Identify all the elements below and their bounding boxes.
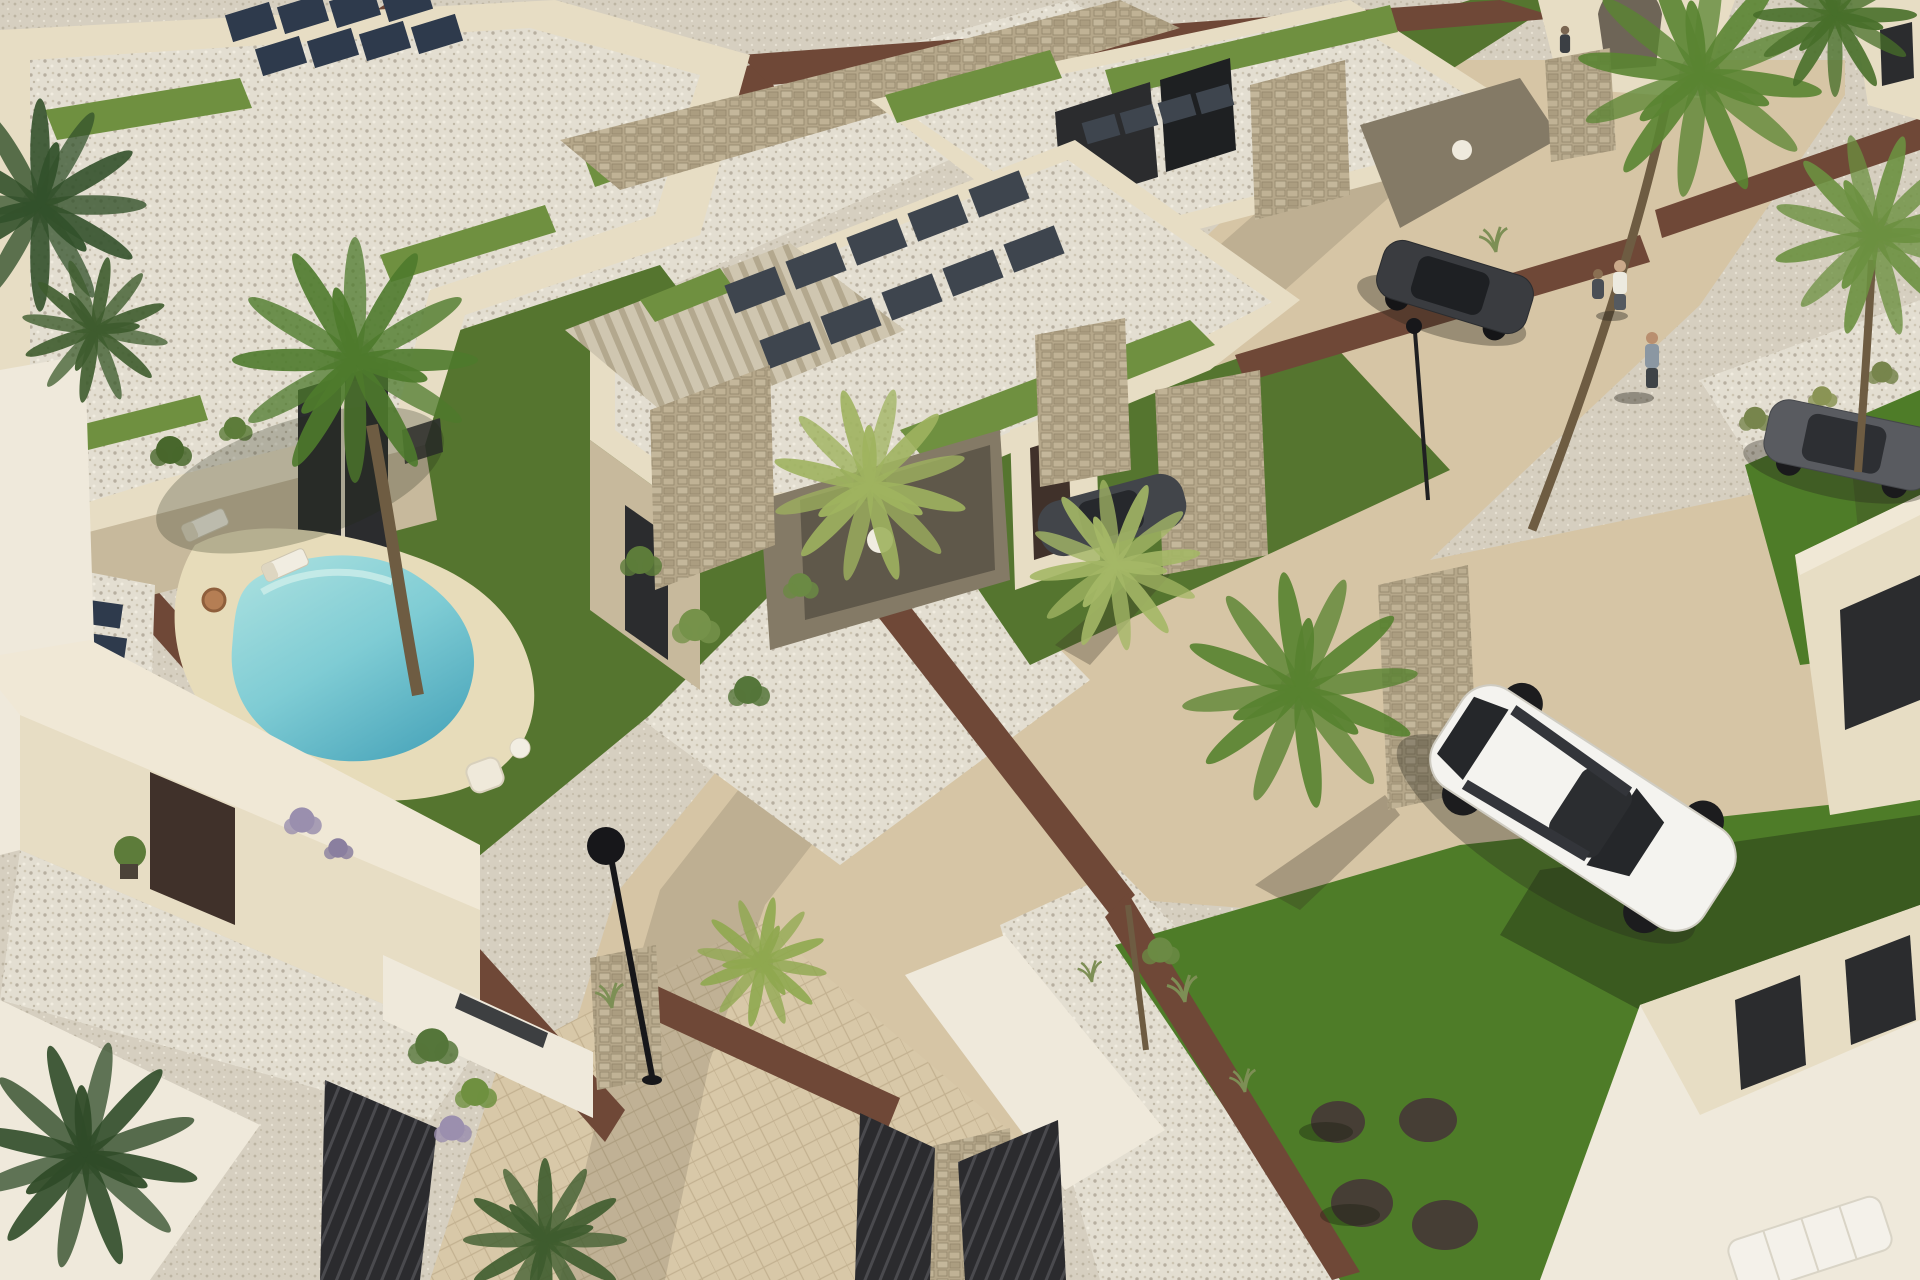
scene-canvas [0, 0, 1920, 1280]
potted-plant [114, 836, 146, 868]
stone-cladding [1250, 60, 1350, 220]
lamp-head [587, 827, 625, 865]
lamp-head [1406, 318, 1422, 334]
bean-bag [1412, 1200, 1478, 1250]
stone-pillar [1035, 318, 1131, 487]
person [1560, 26, 1570, 53]
person [1592, 269, 1604, 299]
stone-pillar [1155, 370, 1268, 575]
terracotta-pot [203, 589, 225, 611]
garden-table [510, 738, 530, 758]
aerial-villa-render [0, 0, 1920, 1280]
bean-bag [1399, 1098, 1457, 1142]
